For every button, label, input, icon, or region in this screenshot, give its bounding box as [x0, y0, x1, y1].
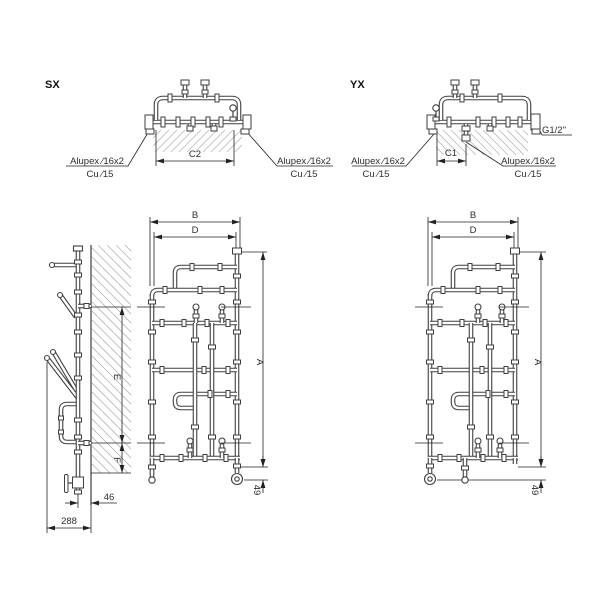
sx-top-view: C2 Alupex ∕16x2 Cu ∕15 Alupex ∕16x2 Cu ∕… — [66, 80, 333, 180]
sx-right-pipe-type-label: Alupex ∕16x2 — [277, 156, 331, 167]
sx-variant-title: SX — [45, 79, 60, 91]
sx-c2-label: C2 — [189, 149, 201, 160]
yx-front-view: B D A 49 — [415, 210, 546, 495]
yx-left-pipe-type-label: Alupex ∕16x2 — [351, 156, 405, 167]
sx-air-valve — [230, 105, 236, 121]
side-288-label: 288 — [61, 516, 77, 527]
yx-middle-foot — [462, 477, 468, 483]
yx-right-pipe-alt-label: Cu ∕15 — [515, 169, 542, 180]
yx-c1-label: C1 — [445, 148, 457, 159]
yx-b-label: B — [470, 210, 476, 221]
sx-front-view: B D A 49 — [137, 210, 268, 495]
side-e-label: E — [111, 374, 122, 380]
yx-air-valve — [433, 105, 439, 121]
side-46-label: 46 — [104, 492, 115, 503]
yx-variant-title: YX — [350, 79, 365, 91]
yx-top-view: C1 G1/2" Alupex ∕16x2 Cu ∕15 Alupex ∕16x… — [351, 80, 572, 180]
sx-left-pipe-alt-label: Cu ∕15 — [87, 169, 114, 180]
yx-49-label: 49 — [529, 485, 540, 496]
sx-variant: SX — [45, 79, 333, 495]
side-f-label: F — [111, 457, 122, 463]
sx-49-label: 49 — [251, 485, 262, 496]
sx-a-label: A — [254, 359, 265, 366]
yx-variant: YX — [350, 79, 572, 495]
yx-thread-label: G1/2" — [542, 125, 566, 136]
sx-left-pipe-type-label: Alupex ∕16x2 — [70, 156, 124, 167]
sx-left-foot — [149, 477, 155, 483]
sx-d-label: D — [192, 225, 199, 236]
side-shutoff-valve — [65, 466, 84, 494]
technical-drawing-page: SX — [0, 0, 616, 616]
piping-diagram-svg: SX — [0, 0, 616, 616]
yx-left-pipe-alt-label: Cu ∕15 — [363, 169, 390, 180]
sx-right-pipe-alt-label: Cu ∕15 — [291, 169, 318, 180]
yx-d-label: D — [470, 225, 477, 236]
yx-a-label: A — [532, 359, 543, 366]
yx-right-pipe-type-label: Alupex ∕16x2 — [501, 156, 555, 167]
sx-b-label: B — [192, 210, 198, 221]
